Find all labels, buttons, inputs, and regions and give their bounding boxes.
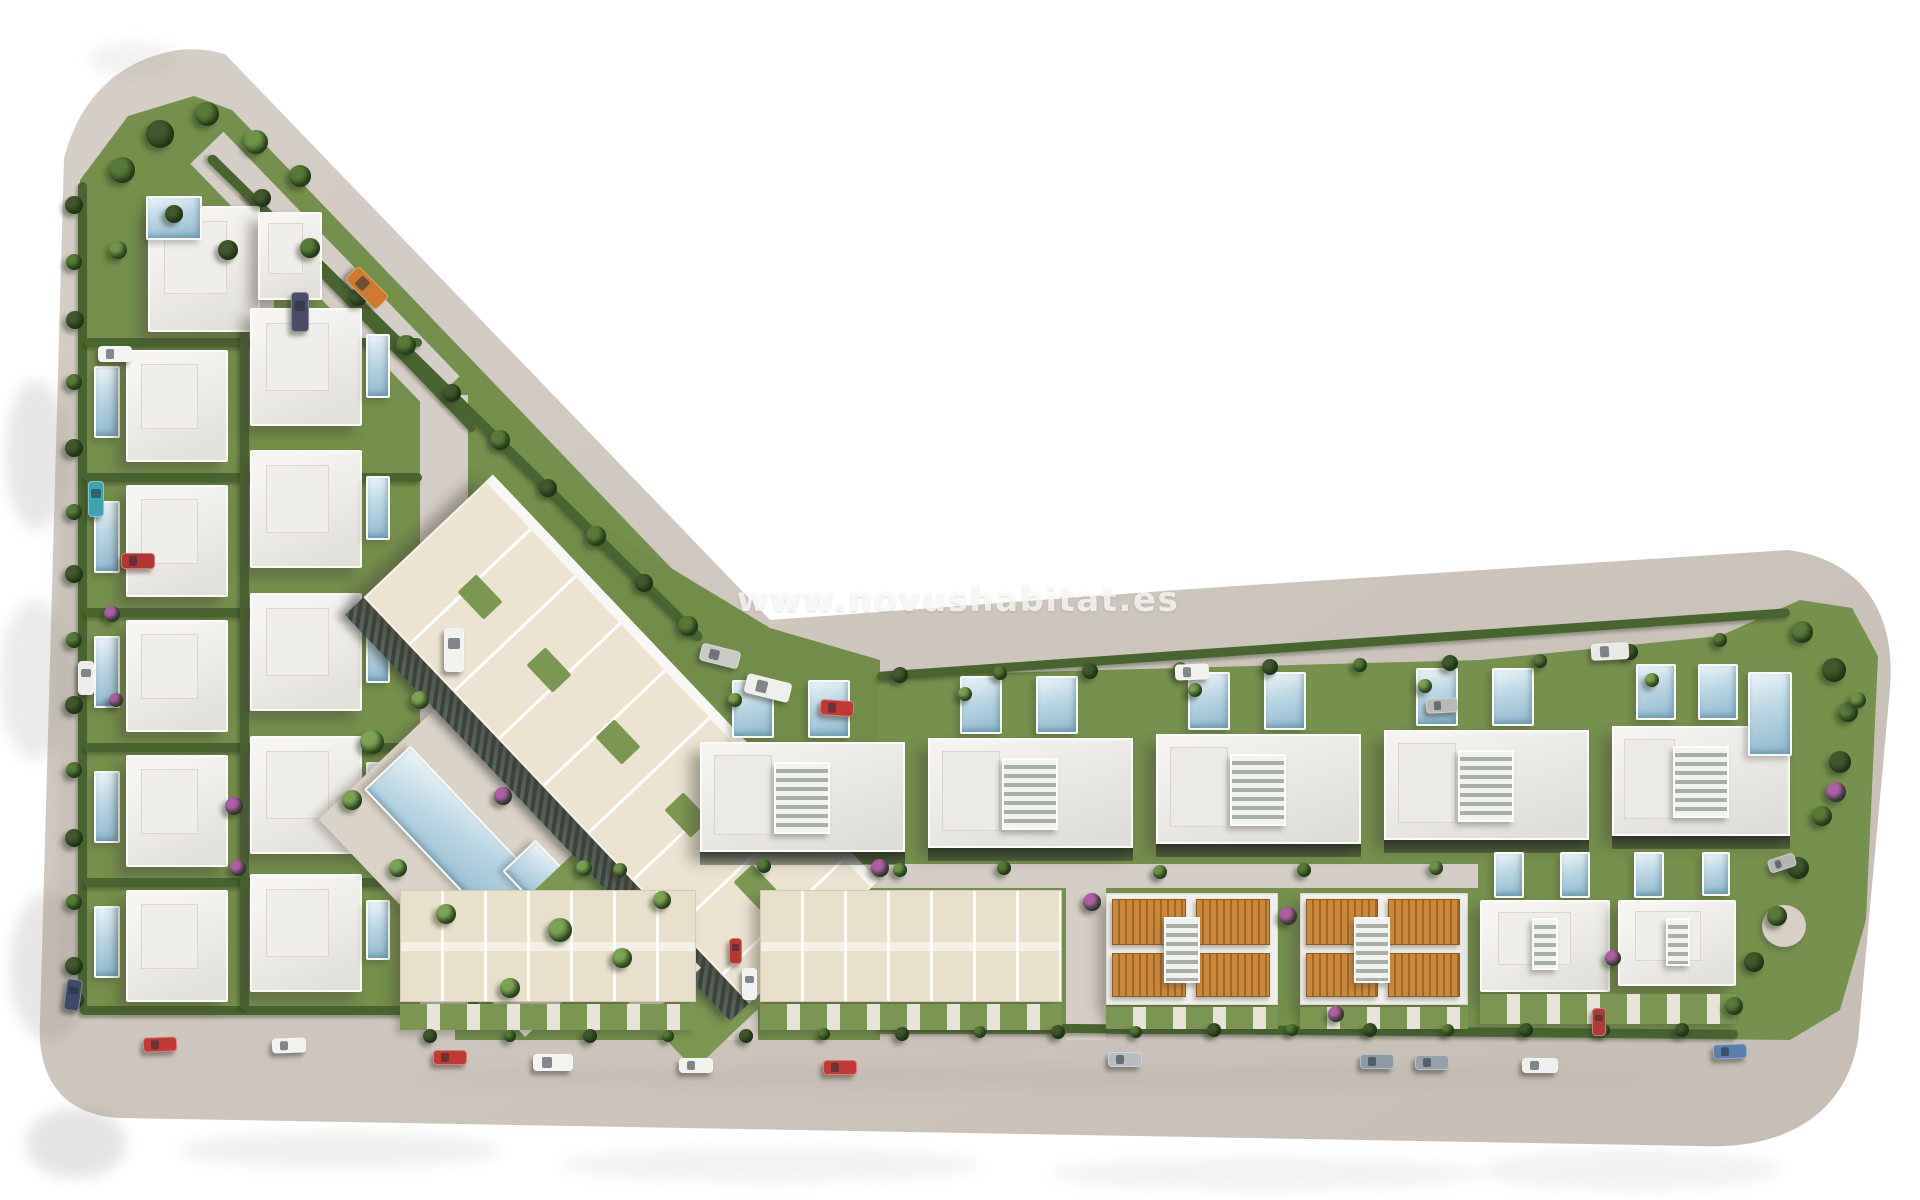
tree (1675, 1023, 1689, 1037)
tree (66, 632, 82, 648)
tree (1826, 782, 1846, 802)
stairwell (1673, 746, 1729, 818)
tree (583, 1029, 597, 1043)
building (94, 366, 120, 438)
tree (892, 667, 908, 683)
car (1713, 1043, 1748, 1059)
tree (65, 565, 83, 583)
car (1415, 1055, 1449, 1070)
tree (1442, 655, 1458, 671)
hedge (240, 300, 249, 1010)
building (1188, 672, 1230, 730)
tree (109, 693, 123, 707)
tree (360, 730, 384, 754)
car (291, 292, 309, 332)
car (1522, 1058, 1558, 1073)
car (679, 1058, 713, 1073)
tree (739, 1029, 753, 1043)
site-plan-render: www.novushabitat.es (0, 0, 1920, 1200)
tree (871, 859, 889, 877)
tree (818, 1028, 830, 1040)
tree (635, 574, 653, 592)
front-gardens (400, 1004, 696, 1030)
tree (436, 904, 456, 924)
tree (1812, 806, 1832, 826)
facade-shadow (1612, 836, 1790, 849)
tree (504, 1030, 516, 1042)
villa-roof (126, 350, 228, 462)
tree (1418, 679, 1432, 693)
tree (1767, 906, 1787, 926)
tree (612, 948, 632, 968)
car (98, 346, 132, 362)
corner-pool (1748, 672, 1792, 756)
tree (490, 430, 510, 450)
car (823, 1060, 857, 1075)
tree (548, 918, 572, 942)
building (1698, 664, 1738, 720)
car (1591, 642, 1630, 661)
tree (389, 859, 407, 877)
stairwell (1164, 917, 1200, 983)
stairwell (774, 762, 830, 834)
stairwell (1002, 758, 1058, 830)
tree (586, 526, 606, 546)
tree (66, 762, 82, 778)
tree (958, 687, 972, 701)
tree (1605, 950, 1621, 966)
car (78, 661, 94, 695)
car (1360, 1054, 1394, 1069)
tree (993, 666, 1007, 680)
tree (974, 1026, 986, 1038)
tree (1850, 692, 1866, 708)
tree (728, 693, 742, 707)
tree (1083, 893, 1101, 911)
tree (1207, 1023, 1221, 1037)
building (1702, 852, 1730, 896)
building (94, 771, 120, 843)
tree (146, 120, 174, 148)
building (1634, 852, 1664, 898)
facade-shadow (928, 848, 1133, 861)
tree (411, 691, 429, 709)
building (1636, 664, 1676, 720)
tree (1286, 1024, 1298, 1036)
tree (539, 479, 557, 497)
villa-roof (250, 450, 362, 568)
tree (757, 859, 771, 873)
tree (1533, 654, 1547, 668)
car (143, 1036, 178, 1052)
tree (576, 860, 592, 876)
tree (1725, 997, 1743, 1015)
tree (1713, 633, 1727, 647)
road (1066, 888, 1106, 1040)
tree (1153, 865, 1167, 879)
car (272, 1037, 307, 1053)
tree (1082, 663, 1098, 679)
cast-shadow (6, 380, 66, 530)
tree (1791, 621, 1813, 643)
car (1108, 1052, 1142, 1067)
villa-roof (126, 890, 228, 1002)
villa-roof (126, 485, 228, 597)
tree (1130, 1026, 1142, 1038)
tree (66, 374, 82, 390)
stairwell (1532, 918, 1558, 970)
tree (678, 616, 698, 636)
cast-shadow (58, 360, 80, 1020)
building (1264, 672, 1306, 730)
tree (1442, 1024, 1454, 1036)
terracotta-roof (1388, 899, 1460, 945)
tree (66, 894, 82, 910)
tree (1429, 861, 1443, 875)
villa-roof (126, 620, 228, 732)
tree (1279, 907, 1297, 925)
tree (895, 1027, 909, 1041)
tree (1519, 1023, 1533, 1037)
tree (1051, 1025, 1065, 1039)
tree (165, 205, 183, 223)
tree (653, 891, 671, 909)
tree (195, 102, 219, 126)
tree (66, 254, 82, 270)
tree (104, 606, 120, 622)
stairwell (1354, 917, 1390, 983)
terracotta-roof (1196, 899, 1270, 945)
tree (396, 335, 416, 355)
car (88, 481, 104, 517)
tree (66, 311, 84, 329)
car (1592, 1008, 1606, 1036)
cast-shadow (420, 1066, 1680, 1088)
facade-shadow (1384, 840, 1589, 853)
tree (253, 189, 271, 207)
tree (443, 384, 461, 402)
watermark-text: www.novushabitat.es (737, 580, 1179, 620)
tree (65, 196, 83, 214)
tree (65, 439, 83, 457)
tree (230, 860, 246, 876)
terracotta-roof (1388, 953, 1460, 997)
building (366, 476, 390, 540)
cast-shadow (560, 1148, 980, 1182)
tree (225, 797, 243, 815)
tree (1297, 863, 1311, 877)
tree (1744, 952, 1764, 972)
stairwell (1458, 750, 1514, 822)
car (729, 938, 742, 964)
building (960, 676, 1002, 734)
tree (997, 861, 1011, 875)
tree (1645, 673, 1659, 687)
car (742, 968, 757, 1000)
tree (423, 1029, 437, 1043)
cast-shadow (1480, 1150, 1780, 1190)
facade-shadow (1156, 844, 1361, 857)
villa-roof (250, 593, 362, 711)
tree (244, 130, 268, 154)
cast-shadow (88, 42, 178, 76)
car (1426, 697, 1459, 714)
tree (218, 240, 238, 260)
cast-shadow (1050, 1158, 1480, 1190)
building (1492, 668, 1534, 726)
tree (1188, 683, 1202, 697)
cast-shadow (26, 1108, 126, 1178)
front-gardens (1480, 994, 1736, 1024)
car (1175, 663, 1210, 680)
car (819, 699, 854, 717)
front-gardens (1106, 1007, 1278, 1029)
villa-roof (126, 755, 228, 867)
building (366, 900, 390, 960)
building (1560, 852, 1590, 898)
tree (1353, 658, 1367, 672)
tree (662, 1030, 674, 1042)
tree (1822, 658, 1846, 682)
tree (494, 787, 512, 805)
tree (893, 863, 907, 877)
villa-roof (250, 874, 362, 992)
building (94, 906, 120, 978)
front-gardens (760, 1004, 1062, 1030)
tree (300, 238, 320, 258)
car (433, 1050, 467, 1065)
terracotta-roof (1196, 953, 1270, 997)
car (444, 628, 464, 672)
tree (109, 241, 127, 259)
tree (109, 157, 135, 183)
tree (500, 978, 520, 998)
building (1036, 676, 1078, 734)
stairwell (1666, 918, 1690, 966)
tree (289, 165, 311, 187)
townhouse-cluster (760, 890, 1062, 1002)
tree (1328, 1006, 1344, 1022)
tree (66, 504, 82, 520)
car (121, 553, 155, 569)
tree (613, 863, 627, 877)
car (533, 1054, 573, 1071)
tree (342, 790, 362, 810)
tree (1363, 1023, 1377, 1037)
cast-shadow (180, 1132, 500, 1168)
tree (65, 696, 83, 714)
tree (65, 829, 83, 847)
tree (1262, 659, 1278, 675)
tree (1829, 751, 1851, 773)
building (1494, 852, 1524, 898)
tree (65, 957, 83, 975)
stairwell (1230, 754, 1286, 826)
building (366, 334, 390, 398)
